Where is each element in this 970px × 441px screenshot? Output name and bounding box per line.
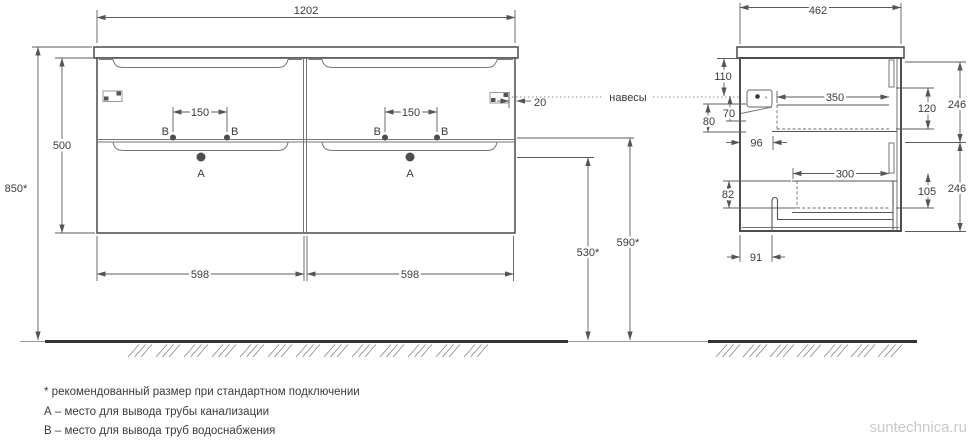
dim-96: 96 <box>750 138 762 150</box>
point-b-label: B <box>374 126 381 138</box>
point-b-label: B <box>231 126 238 138</box>
technical-drawing: B B B B A A 1202 500 850* 150 <box>0 0 970 441</box>
dim-hanger-offset: 20 <box>534 97 546 109</box>
point-b-dot <box>224 135 230 141</box>
dim-hole-spacing-right: 150 <box>402 107 420 119</box>
point-a-label: A <box>406 168 414 180</box>
dim-drawer-width-left: 598 <box>191 269 209 281</box>
dim-front-height: 500 <box>53 140 71 152</box>
point-a-label: A <box>197 168 205 180</box>
dim-hole-spacing-left: 150 <box>191 107 209 119</box>
footnote-point-a: А – место для вывода трубы канализации <box>44 403 360 423</box>
watermark: suntechnica.ru <box>869 419 967 436</box>
hangers-label: навесы <box>609 92 647 104</box>
footnote-recommended-size: * рекомендованный размер при стандартном… <box>44 383 360 403</box>
point-a-dot <box>406 153 415 162</box>
dim-80: 80 <box>703 116 715 128</box>
point-a-dot <box>197 153 206 162</box>
dim-drain-height: 530* <box>577 247 600 259</box>
dim-105: 105 <box>918 186 936 198</box>
dim-246-bottom: 246 <box>948 183 966 195</box>
dim-350: 350 <box>826 92 844 104</box>
point-b-dot <box>434 135 440 141</box>
dim-246-top: 246 <box>948 99 966 111</box>
ground <box>20 342 917 358</box>
dim-depth: 462 <box>809 5 827 17</box>
dim-drawer-width-right: 598 <box>401 269 419 281</box>
front-cabinet-outline <box>94 47 518 233</box>
side-view: 462 110 70 80 96 350 <box>703 3 966 264</box>
footnote-point-b: В – место для вывода труб водоснабжения <box>44 422 360 441</box>
dim-front-width: 1202 <box>294 5 318 17</box>
point-b-dot <box>170 135 176 141</box>
dim-91: 91 <box>750 252 762 264</box>
hanger-bracket-front-left-icon <box>103 91 122 102</box>
dim-supply-height: 590* <box>617 237 640 249</box>
point-b-label: B <box>441 126 448 138</box>
hangers-callout: навесы <box>512 92 756 104</box>
front-view: B B B B A A 1202 500 850* 150 <box>5 5 640 340</box>
point-b-dot <box>382 135 388 141</box>
dim-110: 110 <box>714 71 732 83</box>
dim-120: 120 <box>918 103 936 115</box>
dim-total-height: 850* <box>5 183 28 195</box>
drawing-svg: B B B B A A 1202 500 850* 150 <box>0 0 970 441</box>
ground-hatch-front <box>128 345 488 358</box>
point-b-label: B <box>162 126 169 138</box>
ground-hatch-side <box>716 345 902 358</box>
dim-82: 82 <box>722 189 734 201</box>
dim-300: 300 <box>836 169 854 181</box>
footnotes: * рекомендованный размер при стандартном… <box>44 383 360 441</box>
dim-70: 70 <box>723 108 735 120</box>
